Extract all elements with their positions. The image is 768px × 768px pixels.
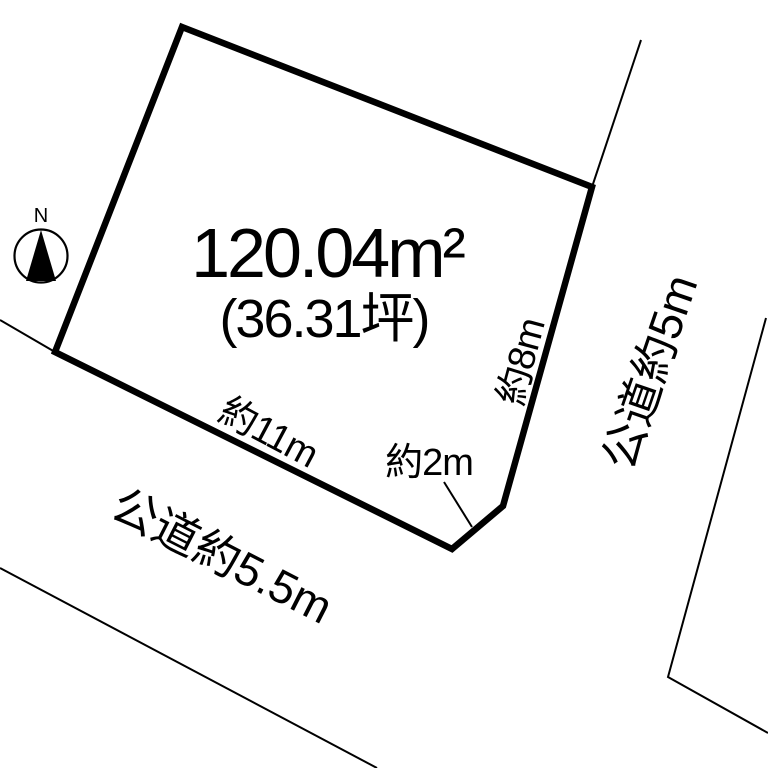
plot-diagram-canvas: 120.04m² (36.31坪) 約11m 約2m 約8m 公道約5.5m 公…	[0, 0, 768, 768]
dimension-label-corner-cut: 約2m	[385, 442, 473, 484]
area-label-tsubo: (36.31坪)	[219, 289, 428, 349]
area-label-m2: 120.04m²	[191, 214, 464, 292]
north-label: N	[34, 205, 48, 227]
land-plot-diagram: 120.04m² (36.31坪) 約11m 約2m 約8m 公道約5.5m 公…	[0, 0, 768, 768]
